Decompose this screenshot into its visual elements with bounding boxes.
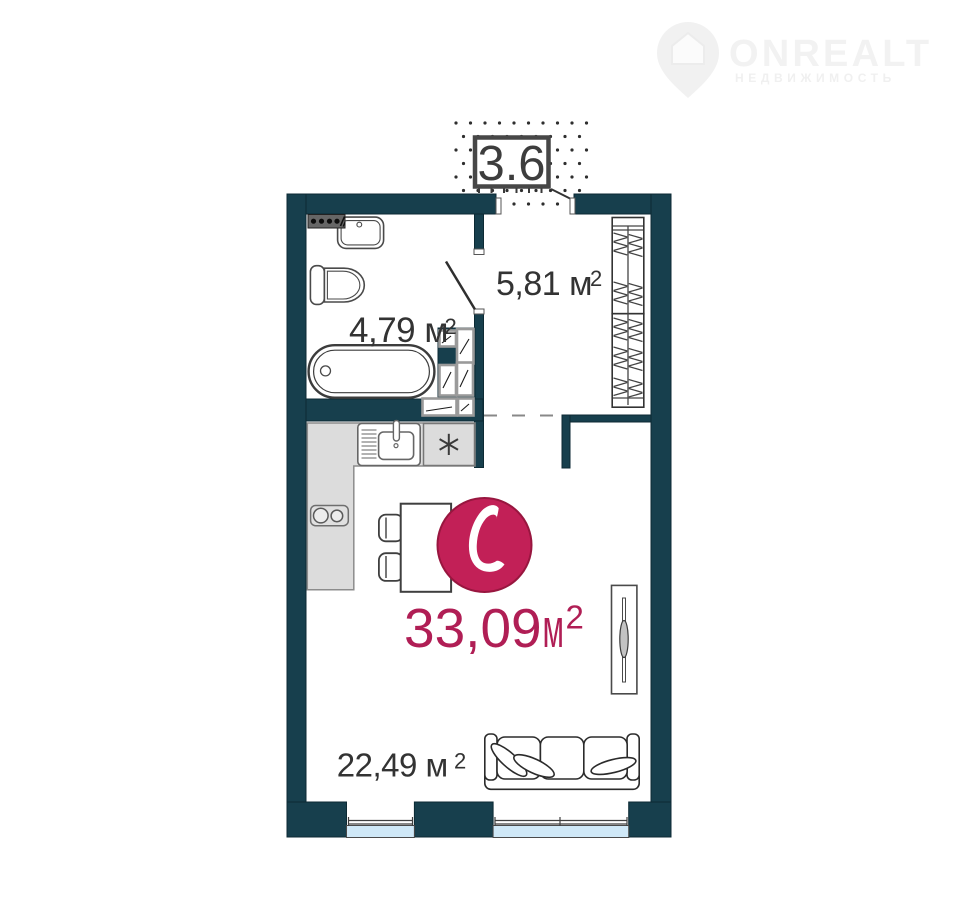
svg-text:2: 2 <box>566 599 584 636</box>
svg-text:33,09: 33,09 <box>404 597 542 659</box>
svg-text:2: 2 <box>590 266 602 291</box>
svg-text:2: 2 <box>445 314 457 339</box>
svg-text:5,81 м: 5,81 м <box>496 265 592 303</box>
svg-text:3.6: 3.6 <box>477 137 545 191</box>
svg-text:2: 2 <box>454 749 466 774</box>
svg-text:22,49 м: 22,49 м <box>337 747 448 784</box>
svg-text:м: м <box>543 597 565 659</box>
svg-text:НЕДВИЖИМОСТЬ: НЕДВИЖИМОСТЬ <box>735 71 896 85</box>
svg-text:ONREALT: ONREALT <box>729 33 932 75</box>
svg-text:4,79 м: 4,79 м <box>349 311 448 350</box>
